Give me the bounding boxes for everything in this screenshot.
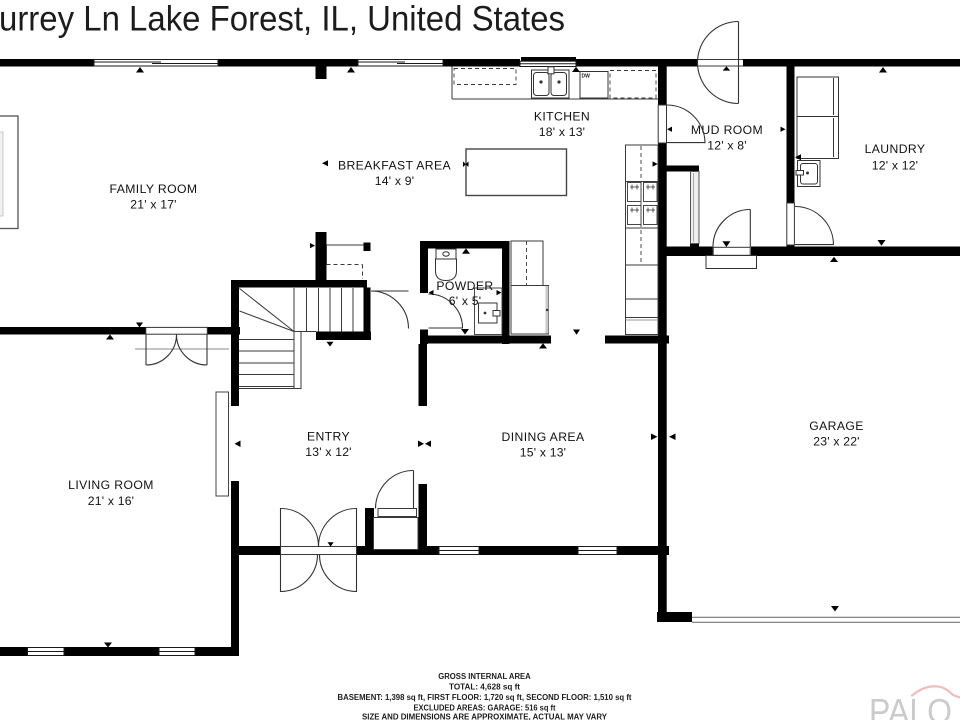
svg-text:EXCLUDED AREAS: GARAGE: 516 sq: EXCLUDED AREAS: GARAGE: 516 sq ft [414,704,556,713]
svg-text:23' x 22': 23' x 22' [813,435,859,449]
svg-text:GROSS INTERNAL AREA: GROSS INTERNAL AREA [438,672,531,681]
svg-text:21' x 16': 21' x 16' [88,494,134,508]
svg-text:ENTRY: ENTRY [307,430,350,444]
svg-text:LAUNDRY: LAUNDRY [865,142,926,156]
svg-text:LIVING ROOM: LIVING ROOM [68,478,154,492]
svg-text:18' x 13': 18' x 13' [539,125,585,139]
svg-text:13' x 12': 13' x 12' [305,445,351,459]
svg-text:POWDER: POWDER [436,279,493,293]
svg-text:14' x 9': 14' x 9' [375,174,414,188]
svg-text:TOTAL: 4,628 sq ft: TOTAL: 4,628 sq ft [449,683,520,692]
svg-text:21' x 17': 21' x 17' [130,198,176,212]
svg-text:DINING AREA: DINING AREA [502,430,585,444]
svg-text:PALO: PALO [869,693,952,720]
svg-text:urrey Ln Lake Forest, IL, Unit: urrey Ln Lake Forest, IL, United States [0,0,565,39]
svg-text:6' x 5': 6' x 5' [449,294,481,308]
svg-text:15' x 13': 15' x 13' [520,446,566,460]
svg-text:12' x 8': 12' x 8' [707,139,746,153]
svg-text:GARAGE: GARAGE [809,419,864,433]
svg-text:BREAKFAST AREA: BREAKFAST AREA [338,159,452,173]
svg-text:BASEMENT: 1,398 sq ft, FIRST F: BASEMENT: 1,398 sq ft, FIRST FLOOR: 1,72… [338,693,632,702]
svg-text:FAMILY ROOM: FAMILY ROOM [110,182,198,196]
svg-text:DW: DW [582,74,591,80]
svg-text:MUD ROOM: MUD ROOM [691,123,763,137]
svg-text:KITCHEN: KITCHEN [534,110,590,124]
svg-text:12' x 12': 12' x 12' [872,159,918,173]
svg-text:SIZE AND DIMENSIONS ARE APPROX: SIZE AND DIMENSIONS ARE APPROXIMATE, ACT… [362,713,608,720]
